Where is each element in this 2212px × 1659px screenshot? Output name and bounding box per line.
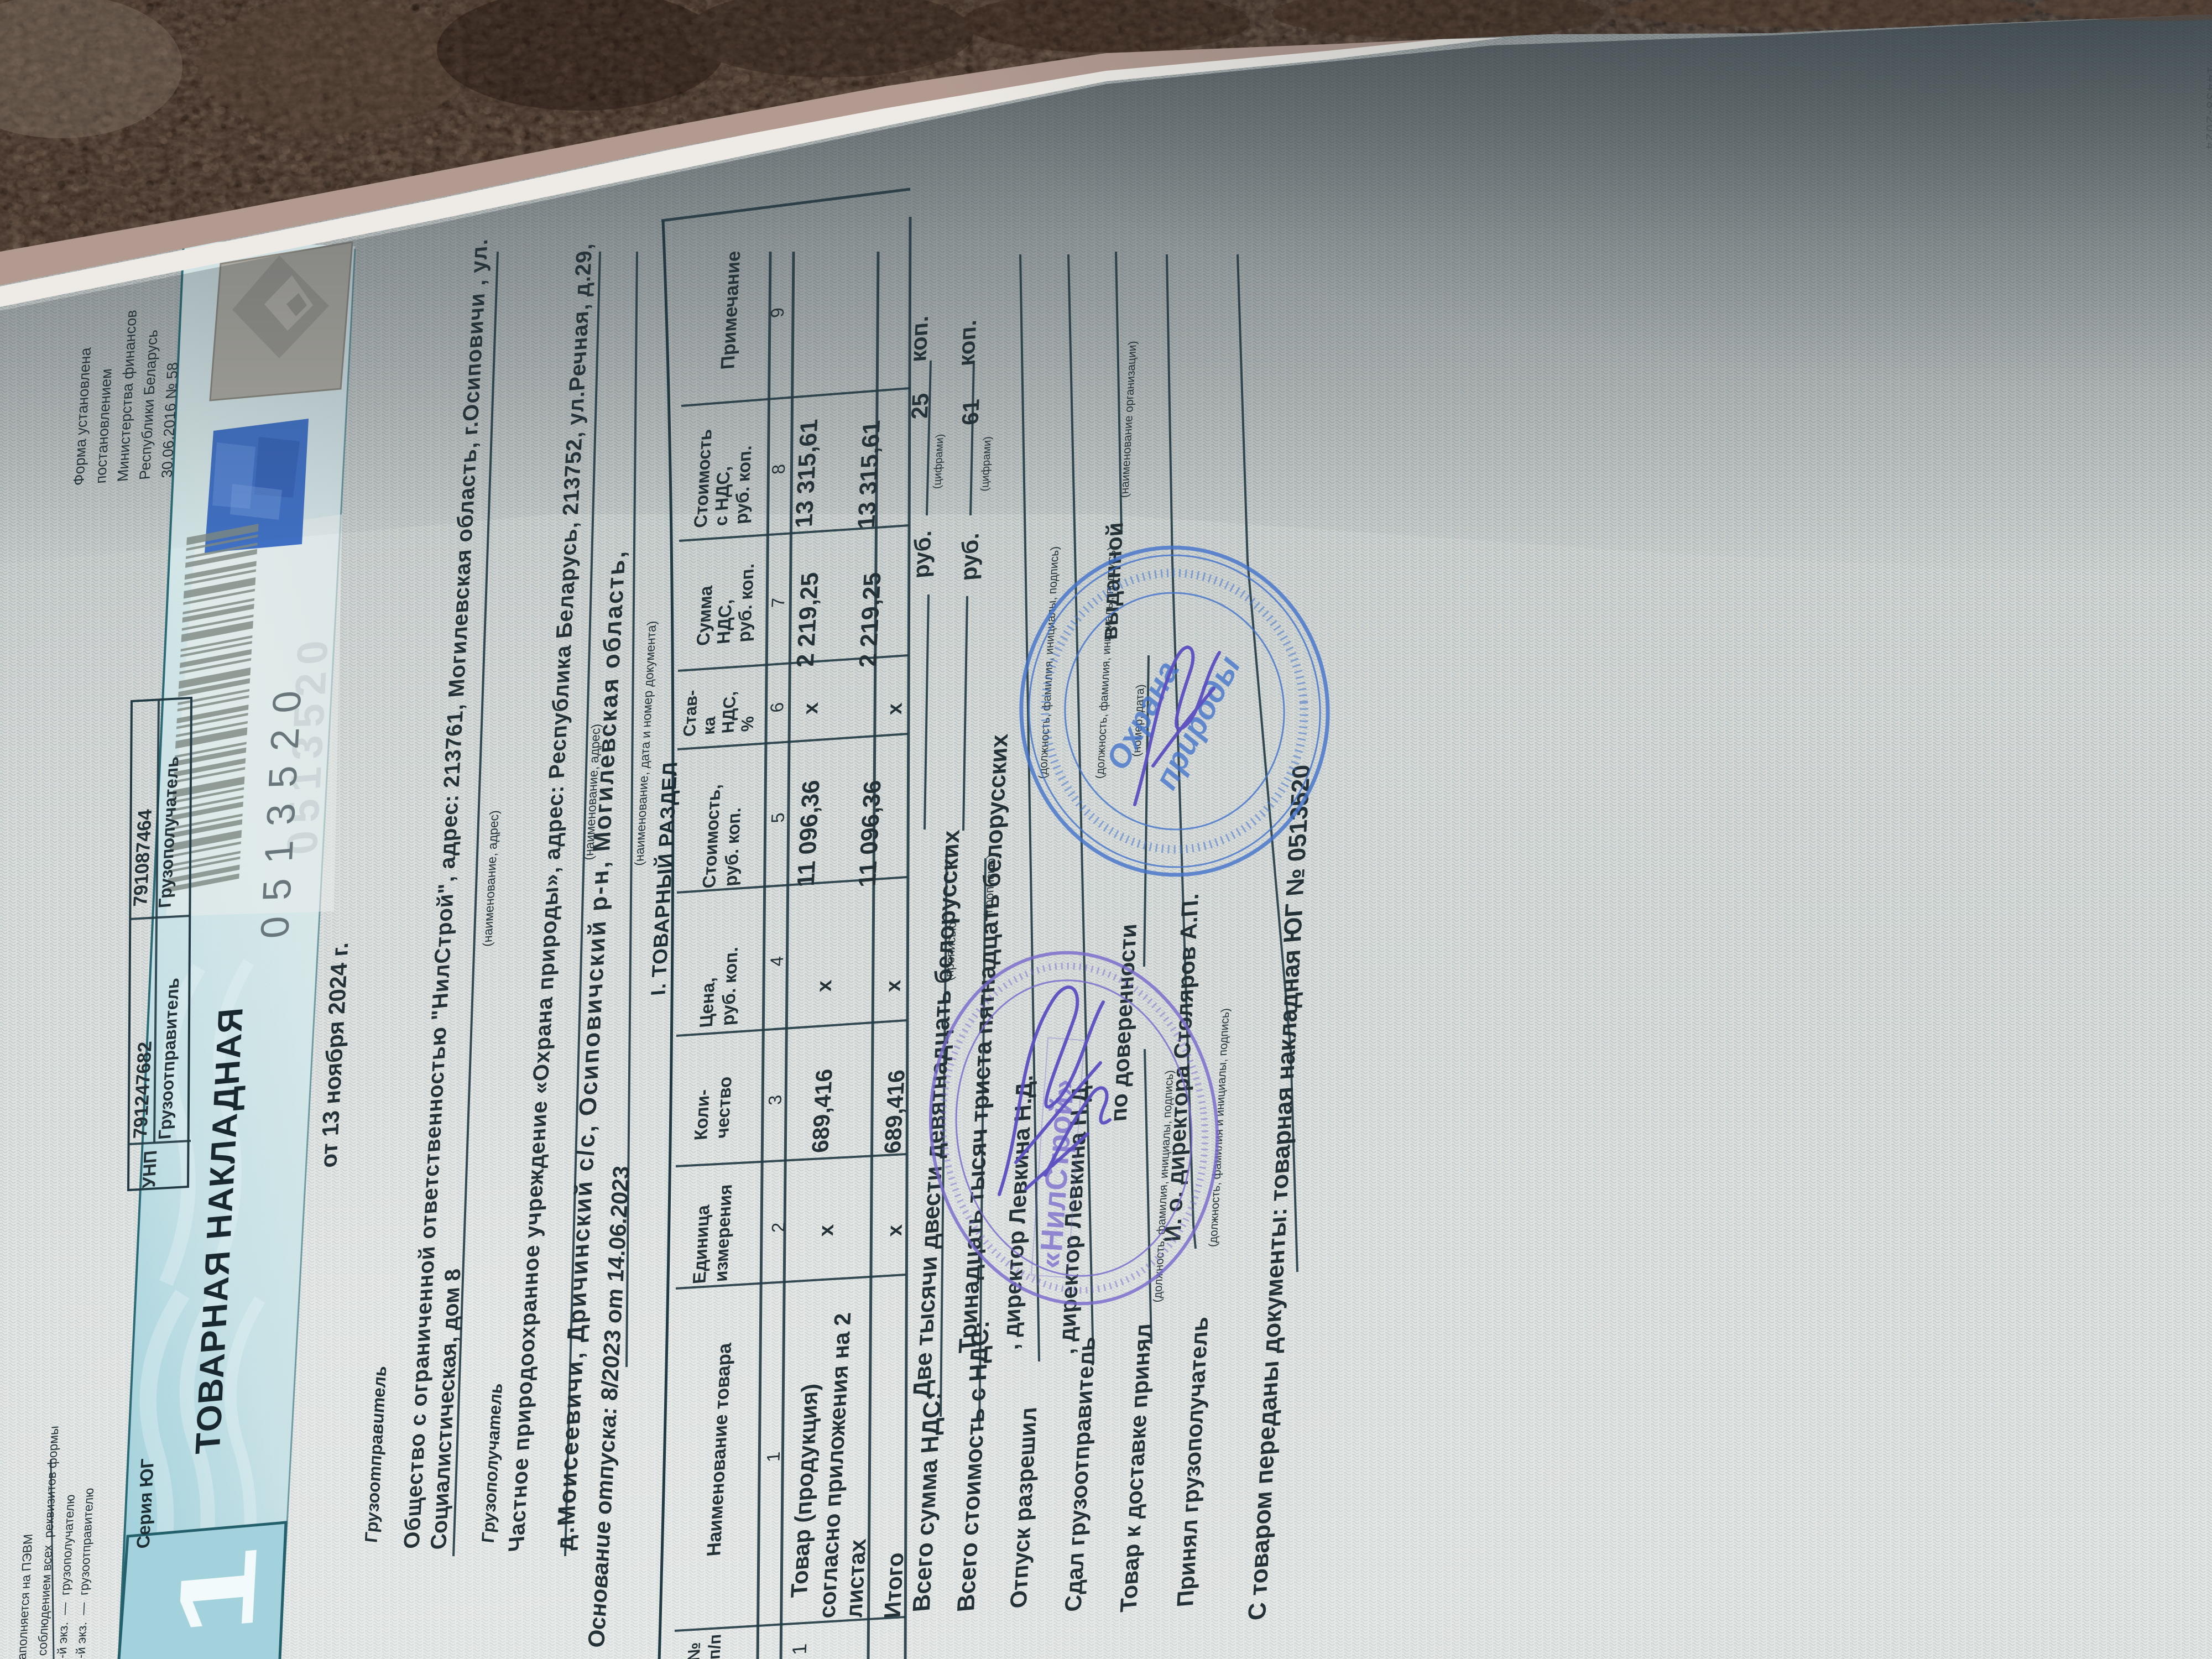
svg-text:природы: природы: [1147, 650, 1248, 795]
svg-text:14438-2024: 14438-2024: [2203, 66, 2212, 151]
